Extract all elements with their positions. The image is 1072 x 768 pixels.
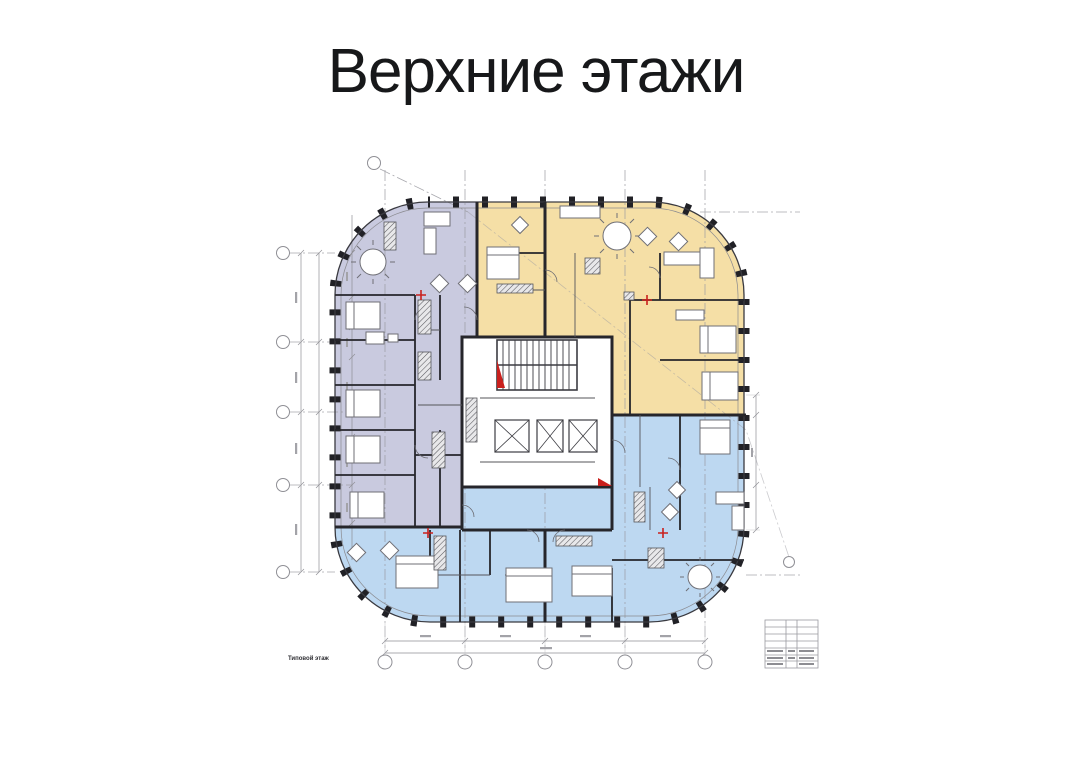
- axis-bubble-right: [784, 557, 795, 568]
- slide: { "title": "Верхние этажи", "plan": { "c…: [0, 0, 1072, 768]
- axis-bubble-bottom: [458, 655, 472, 669]
- title-block: [765, 620, 818, 668]
- elevator-icon: [537, 420, 563, 452]
- elevator-icons: [495, 420, 597, 452]
- drawing-caption: Типовой этаж: [288, 655, 330, 662]
- axis-bubble-bottom: [378, 655, 392, 669]
- axis-bubble-bottom: [538, 655, 552, 669]
- elevator-icon: [495, 420, 529, 452]
- stairwell-icon: [497, 340, 577, 390]
- axis-bubble-bottom: [698, 655, 712, 669]
- axis-bubble-top: [368, 157, 381, 170]
- axis-bubble-left: [277, 479, 290, 492]
- axis-bubble-left: [277, 336, 290, 349]
- zone-west-apartments: [333, 200, 477, 527]
- axis-bubble-left: [277, 566, 290, 579]
- axis-bubble-left: [277, 247, 290, 260]
- elevator-icon: [569, 420, 597, 452]
- axis-bubble-bottom: [618, 655, 632, 669]
- central-core: [462, 337, 612, 487]
- floor-plan: Типовой этаж: [0, 0, 1072, 768]
- axis-bubble-left: [277, 406, 290, 419]
